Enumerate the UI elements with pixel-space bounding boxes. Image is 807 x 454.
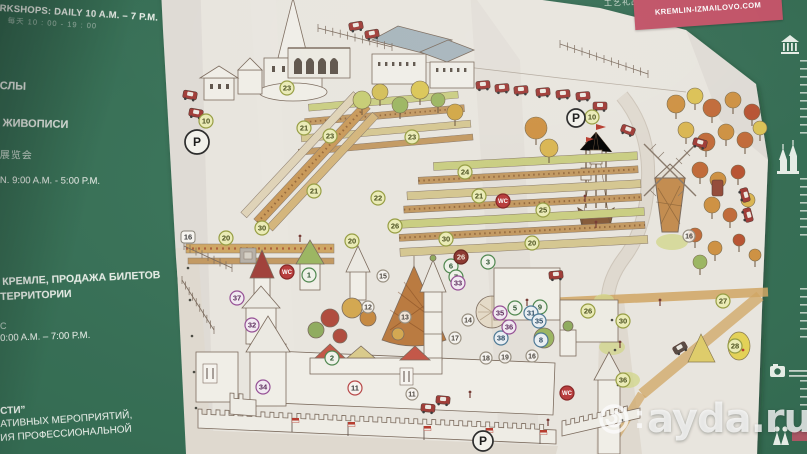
map-marker-19: 19	[499, 351, 511, 363]
svg-text:6: 6	[449, 262, 453, 271]
lamp-post	[195, 407, 198, 410]
svg-text:30: 30	[258, 224, 266, 233]
right-strip	[770, 35, 807, 445]
map-marker-23: 23	[280, 81, 294, 95]
map-marker-34: 34	[256, 380, 270, 394]
map-marker-25: 25	[536, 203, 550, 217]
map-marker-11: 11	[406, 388, 418, 400]
map-marker-28: 28	[728, 339, 742, 353]
right-strip-text-lines	[789, 60, 807, 406]
svg-text:WC: WC	[498, 199, 509, 205]
map-marker-20: 20	[219, 231, 233, 245]
person-figure	[526, 299, 529, 302]
map-marker-16: 16	[683, 230, 695, 242]
map-marker-5: 5	[508, 301, 522, 315]
map-marker-35: 35	[532, 314, 546, 328]
svg-text:35: 35	[535, 317, 543, 326]
map-marker-8: 8	[534, 333, 548, 347]
map-marker-16: 16	[526, 350, 538, 362]
map-marker-37: 37	[230, 291, 244, 305]
map-marker-27: 27	[716, 294, 730, 308]
bus	[712, 180, 723, 196]
svg-text:17: 17	[451, 336, 459, 343]
map-marker-21: 21	[297, 121, 311, 135]
watermark-colon: :	[634, 398, 645, 437]
svg-text:P: P	[193, 135, 201, 149]
map-marker-36: 36	[616, 373, 630, 387]
map-marker-20: 20	[345, 234, 359, 248]
svg-text:11: 11	[351, 384, 359, 393]
svg-text:26: 26	[584, 307, 592, 316]
svg-text:35: 35	[496, 309, 504, 318]
svg-text:25: 25	[539, 206, 547, 215]
map-marker-26: 26	[454, 250, 468, 264]
svg-text:21: 21	[475, 192, 483, 201]
panel-line-fragment-c: С	[0, 321, 7, 331]
svg-text:14: 14	[464, 318, 472, 325]
map-marker-26: 26	[388, 219, 402, 233]
map-marker-11: 11	[348, 381, 362, 395]
svg-text:16: 16	[528, 354, 536, 361]
wc-marker: WC	[496, 194, 510, 208]
svg-text:28: 28	[731, 342, 739, 351]
map-marker-23: 23	[405, 130, 419, 144]
svg-text:33: 33	[454, 279, 462, 288]
svg-text:36: 36	[619, 376, 627, 385]
lamp-post	[187, 267, 190, 270]
wc-marker: WC	[560, 386, 574, 400]
map-marker-33: 33	[451, 276, 465, 290]
svg-text:37: 37	[233, 294, 241, 303]
map-marker-32: 32	[245, 318, 259, 332]
svg-text:16: 16	[685, 234, 693, 241]
svg-text:10: 10	[588, 113, 596, 122]
person-figure	[299, 235, 302, 238]
svg-text:16: 16	[184, 233, 192, 242]
camera-icon	[770, 364, 785, 377]
svg-text:WC: WC	[562, 391, 573, 397]
map-marker-35: 35	[493, 306, 507, 320]
svg-text:10: 10	[202, 117, 210, 126]
map-marker-21: 21	[472, 189, 486, 203]
museum-building-icon	[781, 35, 799, 54]
svg-text:36: 36	[505, 323, 513, 332]
map-marker-17: 17	[449, 332, 461, 344]
map-marker-15: 15	[377, 270, 389, 282]
lamp-post	[611, 319, 614, 322]
photo-of-map-board: 1010202020212121222323232425262627283030…	[0, 0, 807, 454]
svg-text:34: 34	[259, 383, 268, 392]
svg-text:P: P	[479, 434, 487, 448]
svg-text:24: 24	[461, 168, 470, 177]
svg-text:38: 38	[497, 334, 505, 343]
svg-text:12: 12	[364, 305, 372, 312]
svg-text:20: 20	[222, 234, 230, 243]
person-figure	[469, 391, 472, 394]
map-marker-26: 26	[581, 304, 595, 318]
map-marker-16: 16	[181, 231, 195, 243]
map-marker-23: 23	[323, 129, 337, 143]
svg-text:26: 26	[457, 253, 465, 262]
wc-marker: WC	[280, 265, 294, 279]
svg-text:9: 9	[538, 303, 542, 312]
svg-text:8: 8	[539, 336, 543, 345]
svg-text:21: 21	[300, 124, 308, 133]
person-figure	[659, 299, 662, 302]
person-figure	[547, 419, 550, 422]
panel-line-hours2: N. 9:00 A.M. - 5:00 P.M.	[0, 175, 100, 187]
svg-text:22: 22	[374, 194, 382, 203]
panel-line-crafts-fragment: СЛЫ	[0, 80, 26, 93]
parking-marker: P	[473, 431, 493, 451]
watermark: : ayda.ru	[596, 390, 807, 448]
map-marker-12: 12	[362, 301, 374, 313]
svg-text:11: 11	[408, 392, 416, 399]
panel-line-sti-fragment: СТИ”	[0, 405, 26, 417]
svg-text:32: 32	[248, 321, 256, 330]
panel-line-painting-fragment: К ЖИВОПИСИ	[0, 117, 68, 131]
arched-hall	[288, 48, 350, 78]
map-marker-18: 18	[480, 352, 492, 364]
map-marker-13: 13	[399, 311, 411, 323]
lamp-post	[191, 335, 194, 338]
map-marker-14: 14	[462, 314, 474, 326]
map-marker-10: 10	[199, 114, 213, 128]
svg-text:23: 23	[408, 133, 416, 142]
lamp-post	[189, 299, 192, 302]
map-marker-30: 30	[439, 232, 453, 246]
map-marker-1: 1	[302, 268, 316, 282]
watermark-text: ayda.ru	[647, 396, 807, 442]
svg-text:3: 3	[486, 258, 490, 267]
map-marker-36: 36	[502, 320, 516, 334]
panel-line-exhibition-cn: 展览会	[0, 146, 33, 162]
map-marker-30: 30	[616, 314, 630, 328]
map-marker-21: 21	[307, 184, 321, 198]
svg-text:18: 18	[482, 356, 490, 363]
person-figure	[619, 341, 622, 344]
map-marker-2: 2	[325, 351, 339, 365]
svg-text:23: 23	[326, 132, 334, 141]
svg-text:1: 1	[307, 271, 311, 280]
svg-text:23: 23	[283, 84, 291, 93]
svg-text:2: 2	[330, 354, 334, 363]
svg-text:30: 30	[619, 317, 627, 326]
svg-text:5: 5	[513, 304, 517, 313]
svg-text:20: 20	[528, 239, 536, 248]
svg-text:20: 20	[348, 237, 356, 246]
spiral-at-icon	[596, 401, 632, 437]
person-figure	[595, 221, 598, 224]
svg-text:15: 15	[379, 274, 387, 281]
lamp-post	[193, 371, 196, 374]
map-marker-20: 20	[525, 236, 539, 250]
map-marker-22: 22	[371, 191, 385, 205]
svg-text:13: 13	[401, 315, 409, 322]
map-marker-3: 3	[481, 255, 495, 269]
svg-text:19: 19	[501, 355, 509, 362]
izmailovo-kremlin-map: 1010202020212121222323232425262627283030…	[0, 0, 807, 454]
svg-text:WC: WC	[282, 270, 293, 276]
svg-text:P: P	[572, 111, 580, 125]
map-marker-30: 30	[255, 221, 269, 235]
person-figure	[584, 195, 587, 198]
svg-text:26: 26	[391, 222, 399, 231]
svg-text:21: 21	[310, 187, 318, 196]
map-marker-24: 24	[458, 165, 472, 179]
parking-marker: P	[185, 130, 209, 154]
map-marker-10: 10	[585, 110, 599, 124]
lamp-post	[614, 349, 617, 352]
kremlin-silhouette-icon	[777, 140, 799, 174]
svg-text:30: 30	[442, 235, 450, 244]
parking-marker: P	[567, 109, 585, 127]
svg-text:27: 27	[719, 297, 727, 306]
